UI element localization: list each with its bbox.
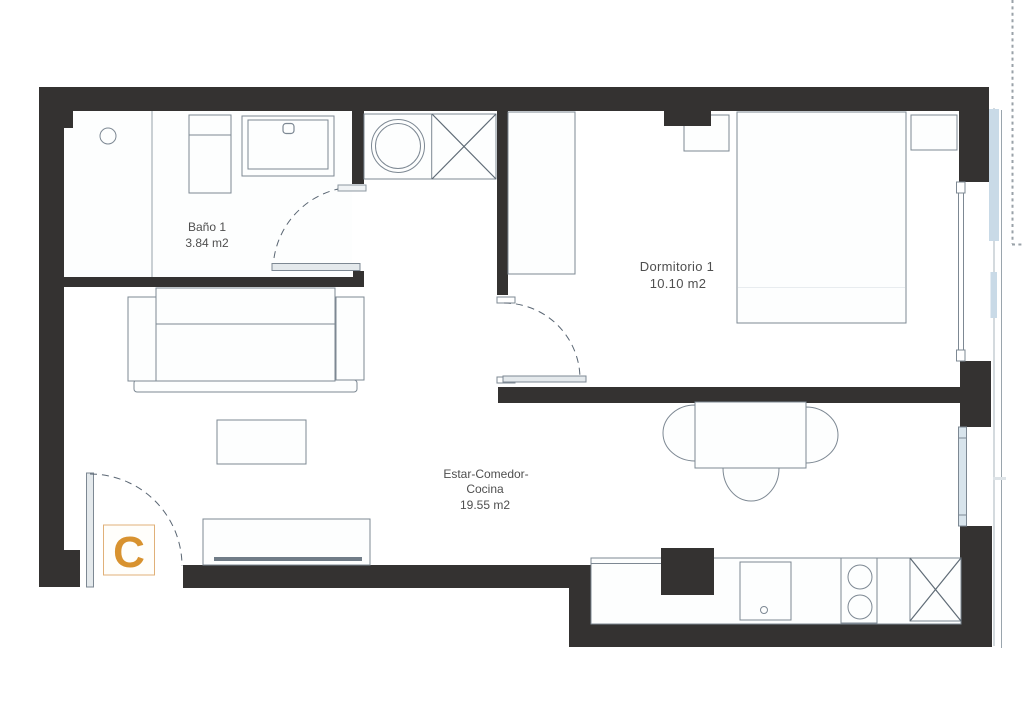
svg-text:Baño 1: Baño 1: [188, 220, 226, 234]
svg-text:C: C: [113, 528, 145, 577]
svg-text:3.84 m2: 3.84 m2: [185, 236, 229, 250]
svg-text:19.55 m2: 19.55 m2: [460, 498, 510, 512]
svg-text:10.10 m2: 10.10 m2: [650, 276, 707, 291]
svg-text:Dormitorio 1: Dormitorio 1: [640, 259, 714, 274]
svg-text:Estar-Comedor-: Estar-Comedor-: [443, 467, 528, 481]
svg-text:Cocina: Cocina: [466, 482, 504, 496]
